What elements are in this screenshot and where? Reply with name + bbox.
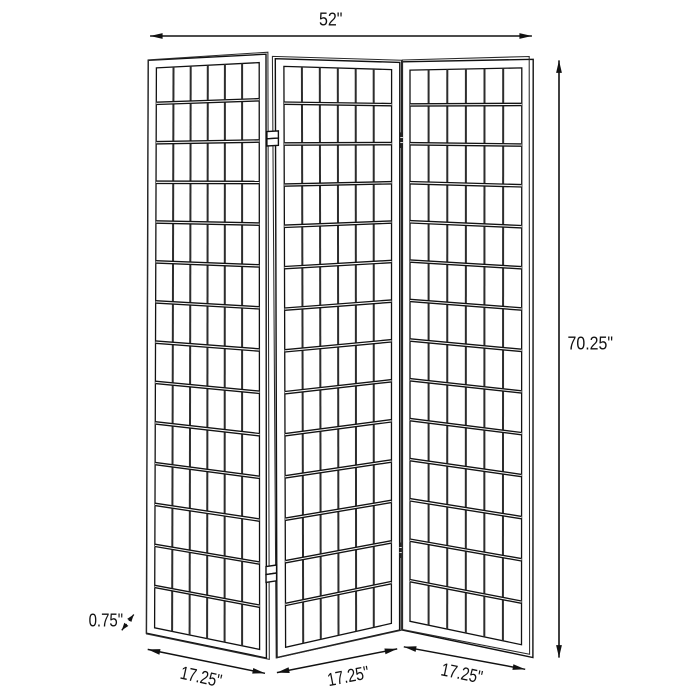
svg-text:70.25": 70.25" (568, 333, 614, 354)
svg-text:0.75": 0.75" (89, 609, 124, 630)
svg-text:52": 52" (319, 9, 343, 30)
